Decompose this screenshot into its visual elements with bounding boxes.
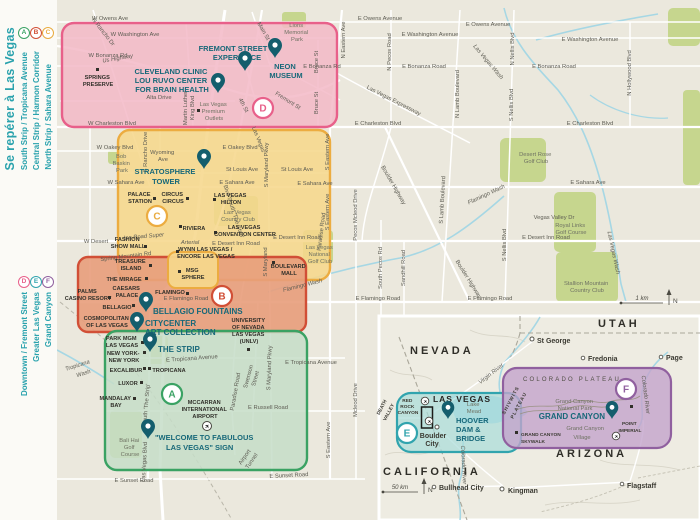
poi-marker [186,292,189,295]
legend-circle-e: E [30,276,42,288]
poi-fashion-show: FASHION SHOW MALL [111,237,146,250]
poi-park-mgm: PARK MGM LAS VEGAS [106,336,139,349]
badge-f: F [616,379,636,399]
road-label: W Charleston Blvd [88,121,136,127]
legend-item-downtown: Downtown / Fremont Street [20,292,29,396]
poi-flamingo: FLAMINGO [155,290,185,296]
legend-item-grand-canyon: Grand Canyon [44,292,53,347]
road-label: E Flamingo Road [356,296,401,302]
poi-marker [178,270,181,273]
road-label: Mcleod Drive [353,383,359,417]
road-label: N Pecos Road [387,33,393,70]
road-label: Vegas Valley Dr [534,215,575,221]
road-label: W Desert [84,239,109,245]
page-title: Se repérer à Las Vegas [3,27,17,171]
city-kingman: Kingman [508,488,538,495]
road-label: Arterial [180,240,200,246]
city-st-george: St George [537,338,571,345]
park-label-desert-rose: Desert Rose Golf Club [519,152,553,165]
poi-luxor: LUXOR [118,381,138,387]
city-page: Page [666,355,683,362]
poi-tropicana: TROPICANA [152,368,185,374]
road-label: King Blvd [190,96,196,121]
state-arizona: ARIZONA [556,448,627,460]
attraction-grand-canyon: GRAND CANYON [539,412,605,421]
legend-circle-b: B [30,27,42,39]
attraction-neon-museum: NEON MUSEUM [269,62,302,80]
map-page: W Owens Ave E Owens Avenue E Owens Avenu… [0,0,700,520]
poi-marker [132,304,135,307]
poi-marker [143,351,146,354]
city-fredonia: Fredonia [588,356,618,363]
poi-mirage: THE MIRAGE [106,277,141,283]
park-label-lv-country-club: Las Vegas Country Club [221,210,255,223]
road-label: E Russell Road [248,405,288,411]
road-label: N Lamb Boulevard [455,70,461,118]
svg-text:C: C [153,212,160,223]
badge-e: E [397,423,417,443]
poi-marker [149,264,152,267]
svg-text:1 km: 1 km [635,296,648,302]
svg-text:E: E [404,429,411,440]
label-lake-mead: Lake Mead [467,402,482,415]
road-label: S Maryland [263,247,269,276]
road-label: Bruce St [314,50,320,73]
svg-text:D: D [259,104,266,115]
las-vegas-map: W Owens Ave E Owens Avenue E Owens Avenu… [0,0,700,520]
road-label: Sandhill Road [401,250,407,286]
legend-circle-d: D [18,276,30,288]
road-label: E Owens Avenue [466,22,510,28]
road-label: E Flamingo Road [164,296,209,302]
road-label: E Washington Avenue [562,37,619,43]
poi-marker [515,431,518,434]
road-label: E Bonanza Rd [303,64,340,70]
badge-b: B [212,286,232,306]
legend-item-greater-lv: Greater Las Vegas [32,292,41,362]
poi-marker [140,381,143,384]
poi-wynn-encore: WYNN LAS VEGAS / ENCORE LAS VEGAS [177,247,235,260]
poi-marker [630,405,633,408]
sidebar-legend: Se repérer à Las Vegas A B C South Strip… [0,0,57,520]
poi-marker [133,397,136,400]
inset-map: NEVADA UTAH CALIFORNIA ARIZONA St George… [376,316,700,520]
road-label: E Sahara Ave [297,181,332,187]
poi-marker [148,367,151,370]
road-label: South Pecos Rd [378,247,384,289]
road-label: W Oakey Blvd [97,145,134,151]
road-label: E Owens Avenue [358,16,402,22]
attraction-the-strip: THE STRIP [158,345,200,354]
road-label: Pecos Mcleod Drive [353,189,359,241]
road-label: W Washington Ave [111,32,160,38]
legend-item-central-strip: Central Strip / Harmon Corridor [32,51,41,170]
poi-marker [96,68,99,71]
badge-c: C [147,206,167,226]
badge-a: A [162,384,182,404]
city-flagstaff: Flagstaff [627,483,657,490]
badge-d: D [253,98,273,118]
legend-circle-f: F [42,276,54,288]
road-label: E Washington Avenue [402,32,459,38]
poi-cosmopolitan: COSMOPOLITAN OF LAS VEGAS [84,316,131,329]
park-label-royal-links: Royal Links Golf Course [555,223,587,236]
north-arrow: N [428,487,433,494]
road-label: E Sunset Road [115,478,154,484]
road-label: E Bonanza Road [402,64,446,70]
road-label: E Flamingo Road [468,296,513,302]
road-label: S Eastern Ave [325,194,331,231]
poi-caesars: CAESARS PALACE [113,286,142,299]
city-bullhead: Bullhead City [439,485,484,492]
road-label: Bruce St [314,91,320,114]
poi-marker [197,109,200,112]
svg-text:50 km: 50 km [392,485,408,491]
road-label: N Hollywood Blvd [627,50,633,95]
svg-text:B: B [218,292,225,303]
label-gc-park: Grand Canyon National Park [555,399,594,412]
road-label: S Nellis Blvd [509,89,515,122]
poi-marker [179,225,182,228]
road-label: St Louis Ave [226,167,258,173]
poi-marker [247,348,250,351]
svg-text:A: A [168,390,175,401]
road-label: S Eastern Ave [326,422,332,459]
legend-circle-c: C [42,27,54,39]
road-label: N Eastern Ave [341,22,347,59]
road-label: Martin Luther [183,91,189,125]
road-label: St Louis Ave [281,167,313,173]
poi-marker [143,367,146,370]
label-colorado-plateau: COLORADO PLATEAU [523,377,621,383]
road-label: E Desert Inn Road [273,235,321,241]
poi-riviera: RIVIERA [183,226,206,232]
road-label: E Charleston Blvd [567,121,613,127]
poi-excalibur: EXCALIBUR [110,368,143,374]
road-label: S Eastern Ave [325,134,331,171]
road-label: E Sahara Ave [570,180,605,186]
state-nevada: NEVADA [410,345,474,357]
road-label: N Nellis Blvd [510,33,516,66]
road-label: E Oakey Blvd [222,145,257,151]
road-label: W Sahara Ave [108,180,145,186]
north-arrow: N [673,298,678,305]
svg-text:F: F [623,385,629,396]
poi-circus-circus: CIRCUS CIRCUS [161,192,184,205]
road-label: E Tropicana Avenue [285,360,337,366]
poi-marker [186,197,189,200]
poi-marker [145,277,148,280]
legend-circle-a: A [18,27,30,39]
road-label: S Nellis Blvd [502,229,508,262]
park-label-lv-national: Las Vegas National Golf Club [306,245,335,265]
poi-nyny: NEW YORK- NEW YORK [107,351,141,364]
poi-palace-station: PALACE STATION [128,192,152,205]
legend-item-south-strip: South Strip / Tropicana Avenue [20,52,29,170]
attraction-bellagio-fountains: BELLAGIO FOUNTAINS [153,307,243,316]
road-label: Alta Drive [146,95,171,101]
label-las-vegas: LAS VEGAS [433,394,491,404]
legend-item-north-strip: North Strip / Sahara Avenue [44,64,53,170]
poi-springs-preserve: SPRINGS PRESERVE [83,75,114,88]
park-label-stallion: Stallion Mountain Country Club [564,281,610,294]
poi-marker [153,197,156,200]
poi-bellagio: BELLAGIO [103,305,133,311]
road-label: E Bonanza Road [532,64,576,70]
road-label: E Charleston Blvd [355,121,401,127]
attraction-cleveland-clinic: CLEVELAND CLINIC LOU RUVO CENTER FOR BRA… [134,67,209,94]
state-utah: UTAH [598,318,640,330]
